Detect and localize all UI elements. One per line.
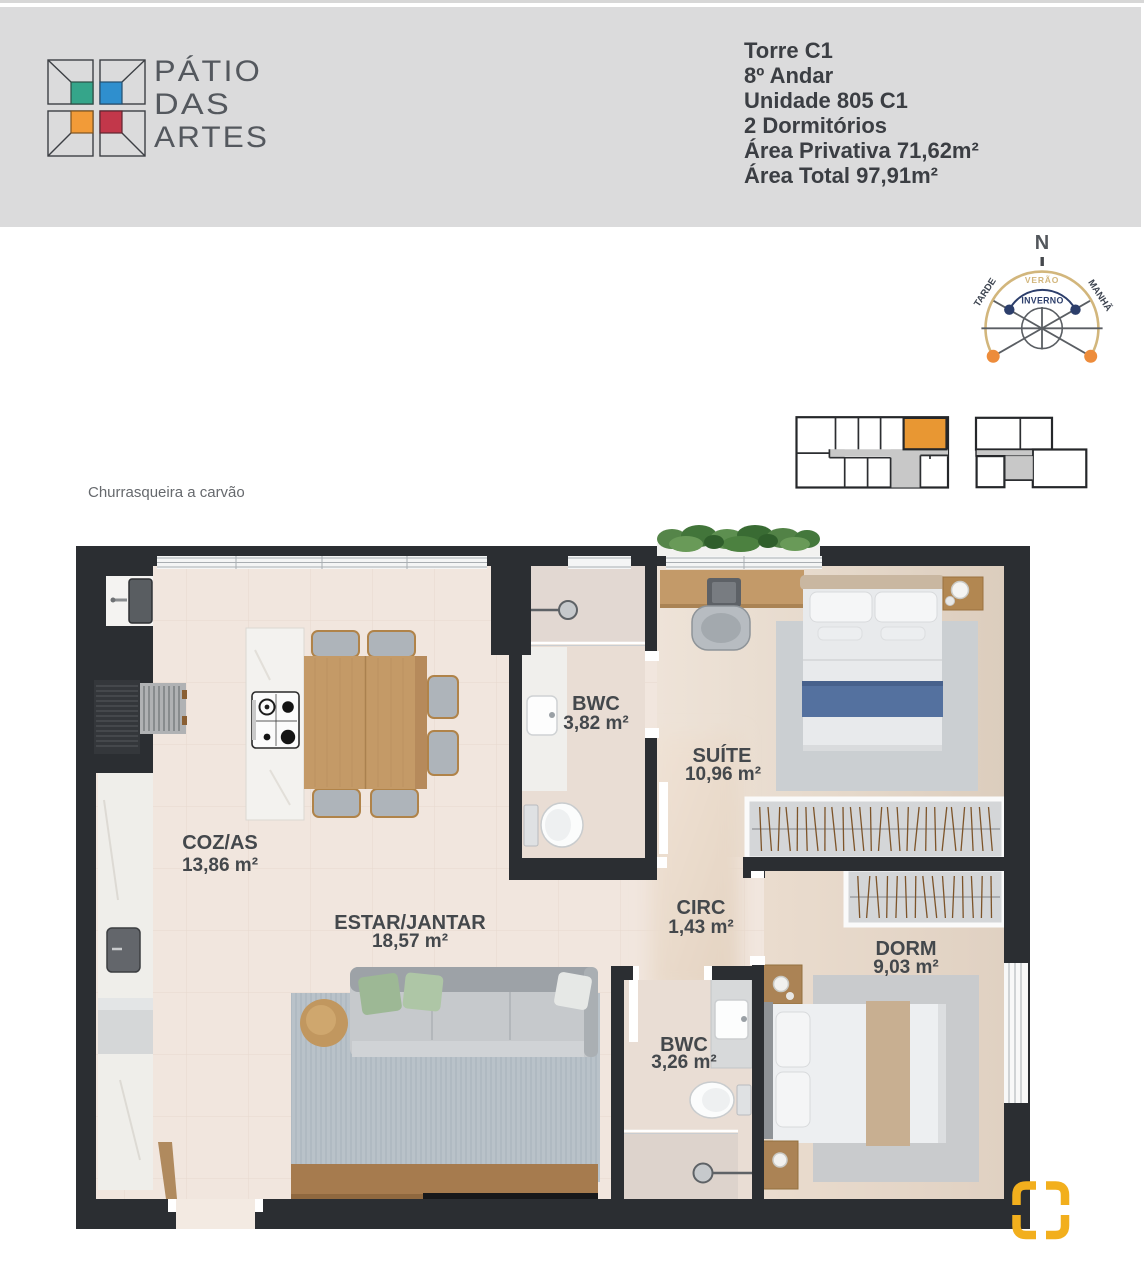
svg-text:N: N [1035,232,1049,254]
svg-text:13,86 m²: 13,86 m² [182,855,258,876]
svg-text:Área Total 97,91m²: Área Total 97,91m² [744,163,938,188]
svg-text:10,96 m²: 10,96 m² [685,764,761,785]
svg-text:2 Dormitórios: 2 Dormitórios [744,113,887,138]
svg-text:COZ/AS: COZ/AS [182,832,258,854]
svg-text:Área Privativa 71,62m²: Área Privativa 71,62m² [744,138,979,163]
svg-text:CIRC: CIRC [677,897,726,919]
svg-text:9,03 m²: 9,03 m² [873,957,938,978]
svg-text:18,57 m²: 18,57 m² [372,931,448,952]
svg-text:BWC: BWC [572,693,620,715]
svg-text:Torre C1: Torre C1 [744,38,833,63]
svg-text:VERÃO: VERÃO [1025,275,1059,285]
svg-text:8º Andar: 8º Andar [744,63,834,88]
svg-text:3,26 m²: 3,26 m² [651,1052,716,1073]
svg-text:PÁTIO: PÁTIO [154,55,262,88]
svg-text:3,82 m²: 3,82 m² [563,713,628,734]
svg-text:DAS: DAS [154,88,231,121]
svg-text:INVERNO: INVERNO [1021,296,1063,306]
svg-text:Churrasqueira a carvão: Churrasqueira a carvão [88,484,245,501]
svg-text:1,43 m²: 1,43 m² [668,917,733,938]
svg-text:ARTES: ARTES [154,121,269,154]
svg-text:Unidade 805 C1: Unidade 805 C1 [744,88,908,113]
